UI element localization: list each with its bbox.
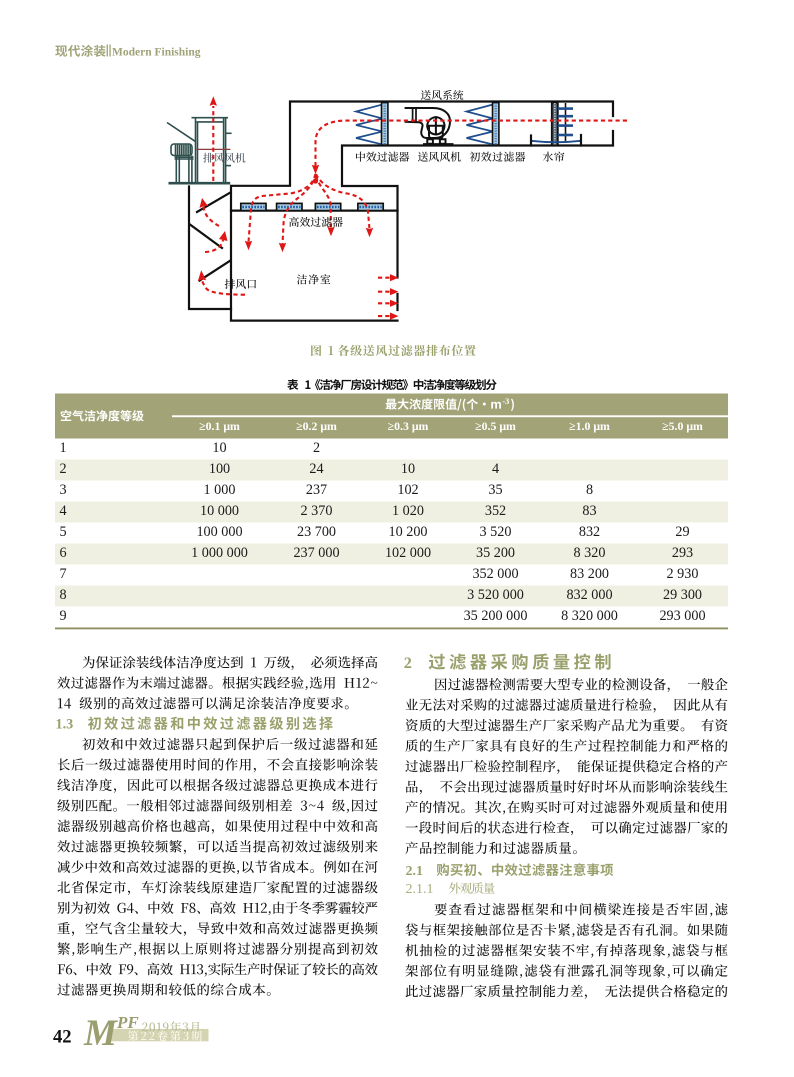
svg-text:10 000: 10 000 <box>200 503 239 519</box>
svg-text:6: 6 <box>60 545 67 561</box>
svg-text:Modern Finishing: Modern Finishing <box>112 46 201 58</box>
svg-text:3 520 000: 3 520 000 <box>467 587 524 603</box>
svg-text:8 320: 8 320 <box>574 545 606 561</box>
svg-text:1 000: 1 000 <box>204 482 236 498</box>
svg-text:4: 4 <box>492 461 499 477</box>
svg-text:102: 102 <box>397 482 418 498</box>
svg-text:832 000: 832 000 <box>566 587 612 603</box>
svg-text:35: 35 <box>488 482 502 498</box>
svg-text:35 200 000: 35 200 000 <box>464 608 528 624</box>
svg-text:2.1: 2.1 <box>406 864 424 879</box>
svg-text:2 930: 2 930 <box>667 566 699 582</box>
svg-text:29 300: 29 300 <box>663 587 702 603</box>
svg-text:1: 1 <box>60 440 67 456</box>
svg-text:9: 9 <box>60 608 67 624</box>
svg-text:10: 10 <box>212 440 226 456</box>
svg-text:293 000: 293 000 <box>659 608 705 624</box>
svg-text:83 200: 83 200 <box>570 566 609 582</box>
svg-text:100: 100 <box>209 461 230 477</box>
svg-text:2: 2 <box>404 654 412 672</box>
svg-text:29: 29 <box>675 524 689 540</box>
svg-text:2 370: 2 370 <box>301 503 333 519</box>
svg-text:≥0.5 μm: ≥0.5 μm <box>475 419 516 433</box>
svg-text:10 200: 10 200 <box>388 524 427 540</box>
svg-text:2.1.1: 2.1.1 <box>406 882 434 897</box>
svg-text:100 000: 100 000 <box>196 524 242 540</box>
svg-text:352 000: 352 000 <box>472 566 518 582</box>
svg-text:≥0.1 μm: ≥0.1 μm <box>199 419 240 433</box>
svg-text:237 000: 237 000 <box>293 545 339 561</box>
svg-text:1 000 000: 1 000 000 <box>191 545 248 561</box>
svg-text:10: 10 <box>401 461 415 477</box>
svg-text:4: 4 <box>60 503 67 519</box>
svg-text:8 320 000: 8 320 000 <box>561 608 618 624</box>
svg-text:3 520: 3 520 <box>480 524 512 540</box>
svg-text:5: 5 <box>60 524 67 540</box>
svg-text:23 700: 23 700 <box>297 524 336 540</box>
svg-text:8: 8 <box>586 482 593 498</box>
svg-text:352: 352 <box>485 503 506 519</box>
svg-text:237: 237 <box>306 482 327 498</box>
svg-text:2: 2 <box>313 440 320 456</box>
svg-text:1 020: 1 020 <box>392 503 424 519</box>
svg-text:M: M <box>83 1013 118 1054</box>
svg-text:24: 24 <box>309 461 323 477</box>
svg-text:293: 293 <box>672 545 693 561</box>
svg-text:42: 42 <box>53 1027 72 1048</box>
svg-text:2: 2 <box>60 461 67 477</box>
svg-text:83: 83 <box>582 503 596 519</box>
svg-text:1.3: 1.3 <box>56 717 74 733</box>
svg-text:≥1.0 μm: ≥1.0 μm <box>569 419 610 433</box>
svg-text:≥0.2 μm: ≥0.2 μm <box>296 419 337 433</box>
svg-text:3: 3 <box>60 482 67 498</box>
svg-text:7: 7 <box>60 566 67 582</box>
svg-text:8: 8 <box>60 587 67 603</box>
svg-text:PF: PF <box>116 1013 139 1032</box>
svg-text:≥0.3 μm: ≥0.3 μm <box>388 419 429 433</box>
svg-text:102 000: 102 000 <box>385 545 431 561</box>
svg-text:832: 832 <box>579 524 600 540</box>
svg-text:35 200: 35 200 <box>476 545 515 561</box>
svg-text:-3: -3 <box>502 397 509 406</box>
svg-text:≥5.0 μm: ≥5.0 μm <box>662 419 703 433</box>
